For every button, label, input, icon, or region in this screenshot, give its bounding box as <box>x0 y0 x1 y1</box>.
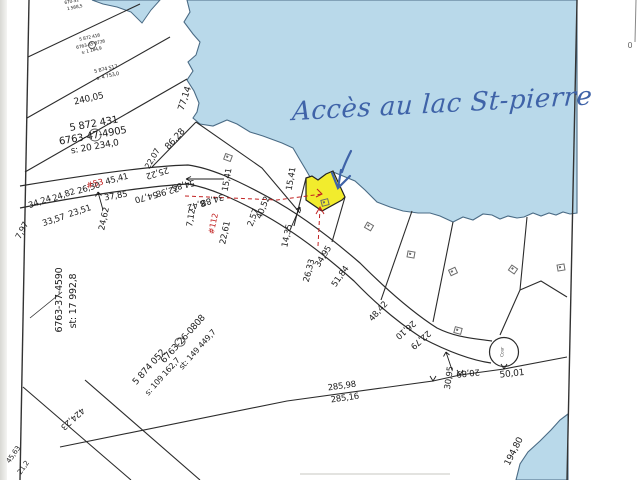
measure-label: Cour <box>502 347 507 357</box>
measure-label: 6763-37-4590 <box>55 268 65 333</box>
lot-marker-icon <box>406 250 415 258</box>
scan-smudge <box>300 473 450 475</box>
inlet-water <box>92 0 160 23</box>
measure-label: st: 17 992,8 <box>69 274 79 329</box>
page-artifact-line <box>635 0 636 42</box>
measure-label: 20,89 <box>456 366 480 377</box>
lot-marker-icon <box>556 263 565 271</box>
cadastral-map-scan: Accès au lac St-pierre 670-521 568,55 87… <box>0 0 640 480</box>
pond-water <box>516 414 568 480</box>
measure-label: 0 <box>628 42 633 50</box>
